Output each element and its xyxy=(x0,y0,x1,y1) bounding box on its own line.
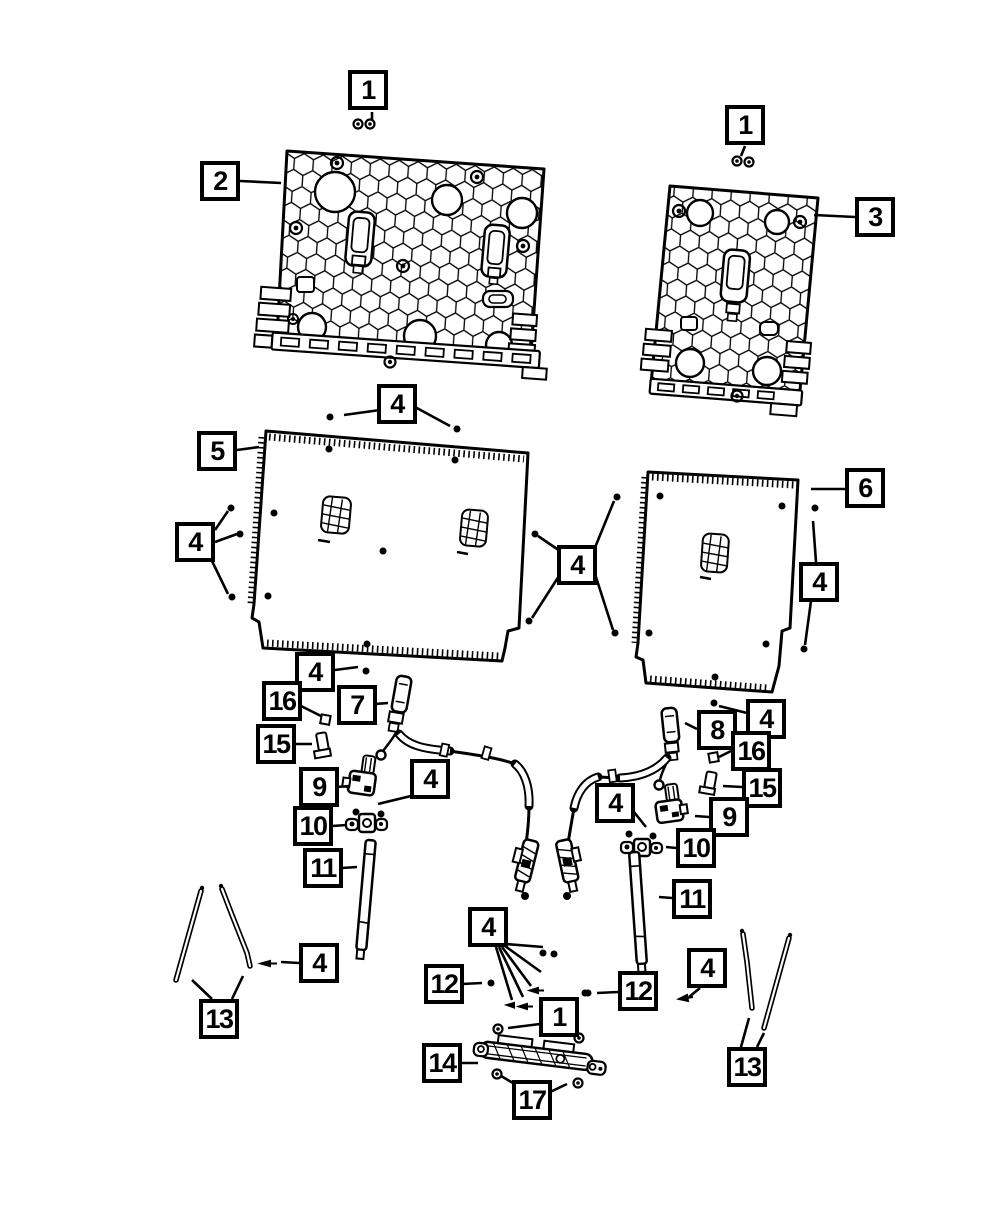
callout-3: 3 xyxy=(855,197,895,237)
cable-cylinder-8 xyxy=(661,707,681,760)
latch-handle-bezel xyxy=(459,509,489,547)
callout-4: 4 xyxy=(557,545,597,585)
rod-11-right xyxy=(629,852,647,972)
seat-back-panel-right xyxy=(635,472,798,692)
seat-back-frame-right xyxy=(641,186,818,416)
callout-4: 4 xyxy=(468,907,508,947)
diagram-artwork xyxy=(0,0,1000,1214)
callout-2: 2 xyxy=(200,161,240,201)
callout-12: 12 xyxy=(424,964,464,1004)
callout-6: 6 xyxy=(845,468,885,508)
callout-5: 5 xyxy=(197,431,237,471)
callout-13: 13 xyxy=(727,1047,767,1087)
callout-11: 11 xyxy=(303,848,343,888)
bracket-10-right xyxy=(621,839,662,856)
callout-1: 1 xyxy=(348,70,388,110)
torsion-rods-right xyxy=(740,929,792,1028)
latch-bracket-9-left xyxy=(342,753,379,796)
callout-17: 17 xyxy=(512,1080,552,1120)
callout-4: 4 xyxy=(175,522,215,562)
nut-16-left xyxy=(320,714,330,724)
callout-4: 4 xyxy=(595,783,635,823)
latch-assembly-14 xyxy=(473,1032,608,1075)
callout-15: 15 xyxy=(256,724,296,764)
parts-diagram: 1 2 1 3 4 5 4 4 6 4 4 16 7 15 9 4 10 11 … xyxy=(0,0,1000,1214)
callout-16: 16 xyxy=(731,731,771,771)
callout-16: 16 xyxy=(262,681,302,721)
cable-latch-left xyxy=(506,837,539,893)
callout-10: 10 xyxy=(676,828,716,868)
callout-13: 13 xyxy=(199,999,239,1039)
seat-back-frame-left xyxy=(254,151,548,380)
callout-7: 7 xyxy=(337,685,377,725)
cable-cylinder-7 xyxy=(387,675,412,733)
clip-15-left xyxy=(311,732,331,758)
rod-11-left xyxy=(355,840,375,959)
callout-4: 4 xyxy=(299,943,339,983)
callout-1: 1 xyxy=(539,997,579,1037)
cable-latch-right xyxy=(556,838,587,893)
latch-handle-bezel xyxy=(701,533,731,573)
callout-4: 4 xyxy=(377,384,417,424)
callout-4: 4 xyxy=(687,948,727,988)
latch-handle-bezel xyxy=(320,496,351,534)
nut-16-right xyxy=(708,752,718,762)
callout-12: 12 xyxy=(618,971,658,1011)
callout-9: 9 xyxy=(299,767,339,807)
callout-10: 10 xyxy=(293,806,333,846)
callout-14: 14 xyxy=(422,1043,462,1083)
callout-11: 11 xyxy=(672,879,712,919)
clip-15-right xyxy=(699,771,718,795)
callout-1: 1 xyxy=(725,105,765,145)
seat-back-panel-left xyxy=(251,431,528,661)
release-cable-left xyxy=(377,675,540,900)
torsion-rods-left xyxy=(176,884,250,980)
callout-4: 4 xyxy=(799,562,839,602)
callout-4: 4 xyxy=(410,759,450,799)
